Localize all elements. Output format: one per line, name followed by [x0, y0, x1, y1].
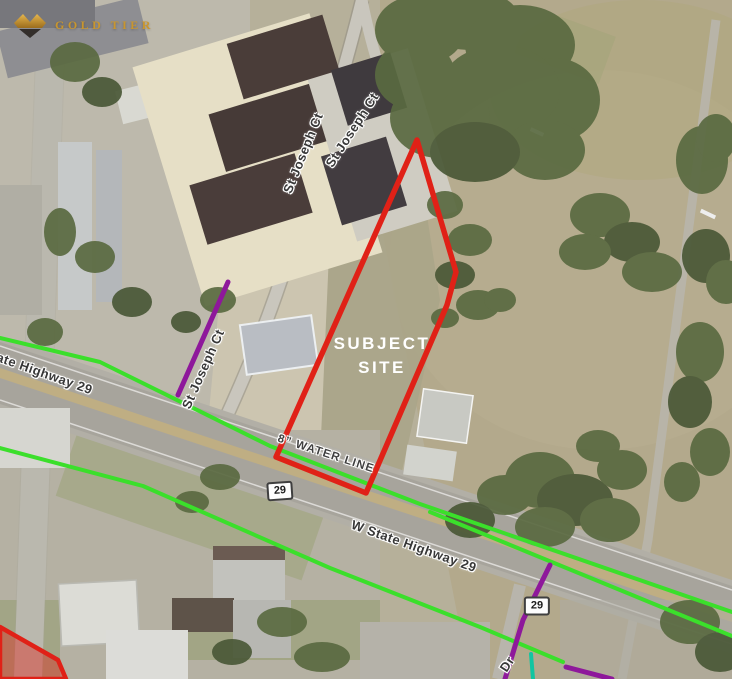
- highway-29-shield-east: 29: [524, 597, 550, 616]
- teal-utility-line: [531, 654, 533, 679]
- gold-tier-logo: GOLD TIER: [12, 11, 154, 39]
- highway-29-shield-west: 29: [266, 481, 294, 502]
- crown-icon: [12, 11, 48, 39]
- subject-site-label: SUBJECT SITE: [334, 332, 431, 380]
- subject-site-line1: SUBJECT: [334, 332, 431, 356]
- subject-site-line2: SITE: [334, 356, 431, 380]
- aerial-map: GOLD TIER St Joseph Ct St Joseph Ct St J…: [0, 0, 732, 679]
- brand-name: GOLD TIER: [55, 18, 154, 33]
